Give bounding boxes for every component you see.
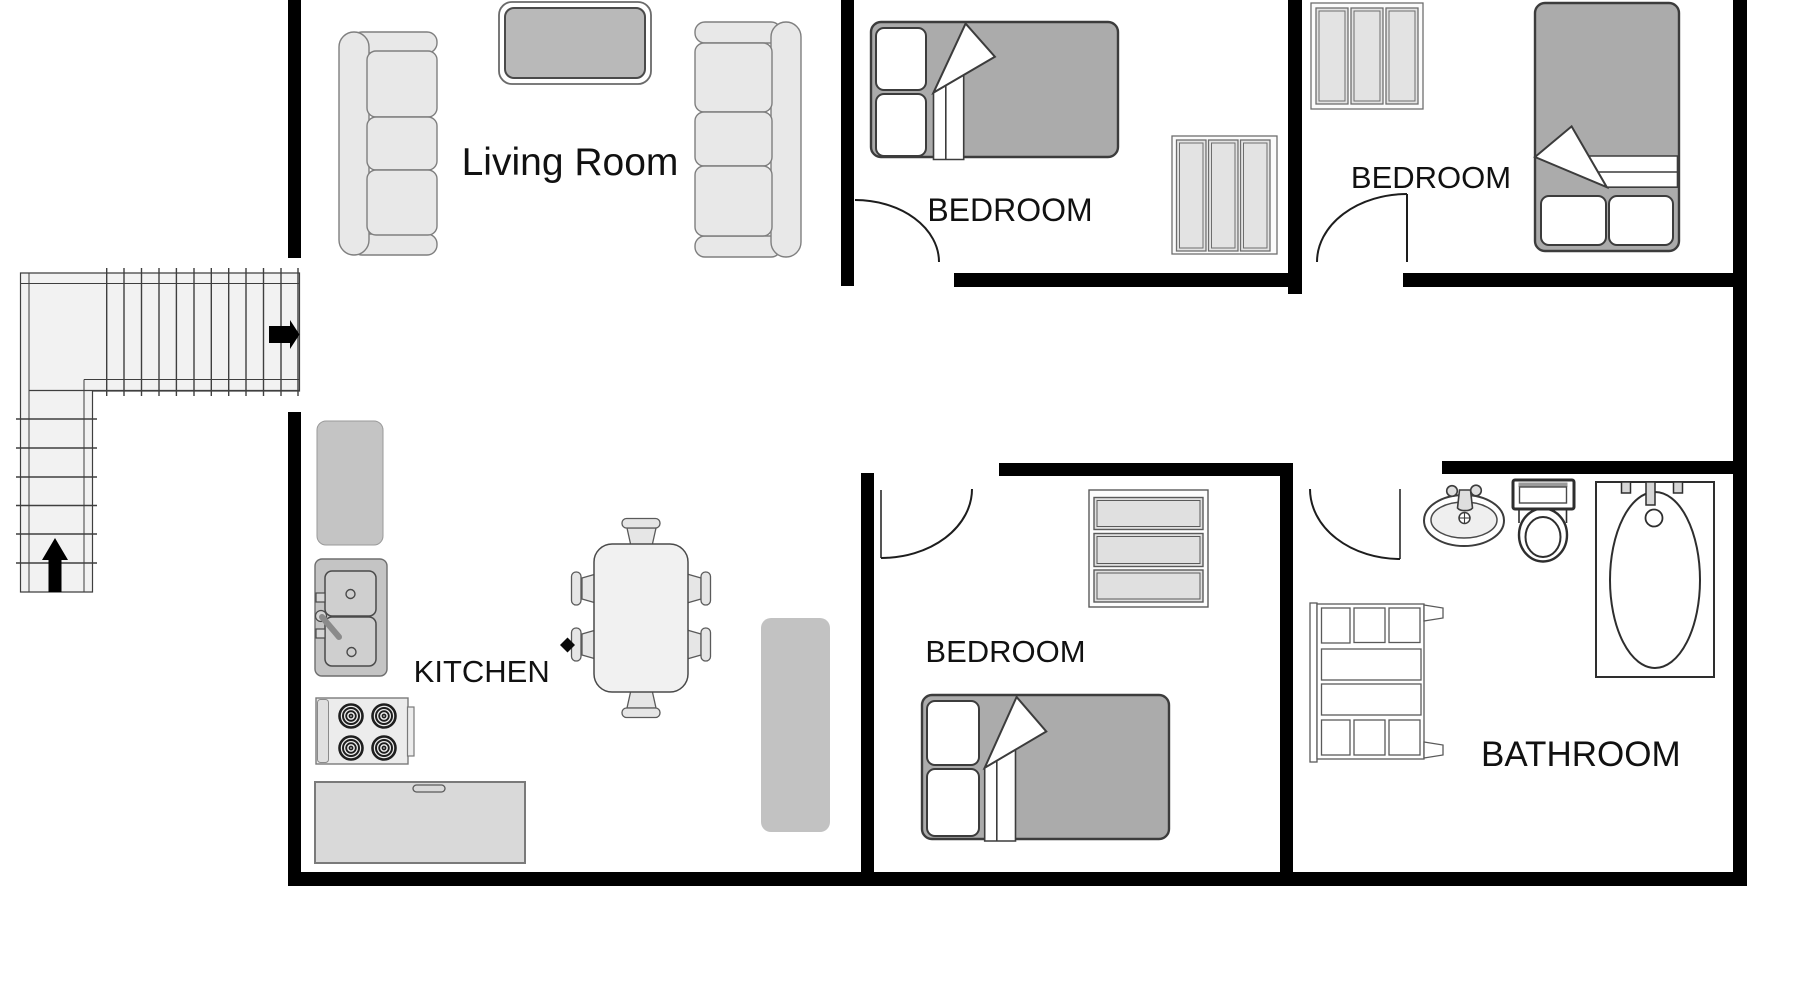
svg-text:BATHROOM: BATHROOM xyxy=(1481,735,1681,774)
svg-text:BEDROOM: BEDROOM xyxy=(1351,160,1511,195)
svg-text:Living Room: Living Room xyxy=(462,141,679,184)
svg-text:BEDROOM: BEDROOM xyxy=(925,634,1085,669)
svg-text:BEDROOM: BEDROOM xyxy=(927,192,1092,228)
svg-text:KITCHEN: KITCHEN xyxy=(414,654,550,689)
